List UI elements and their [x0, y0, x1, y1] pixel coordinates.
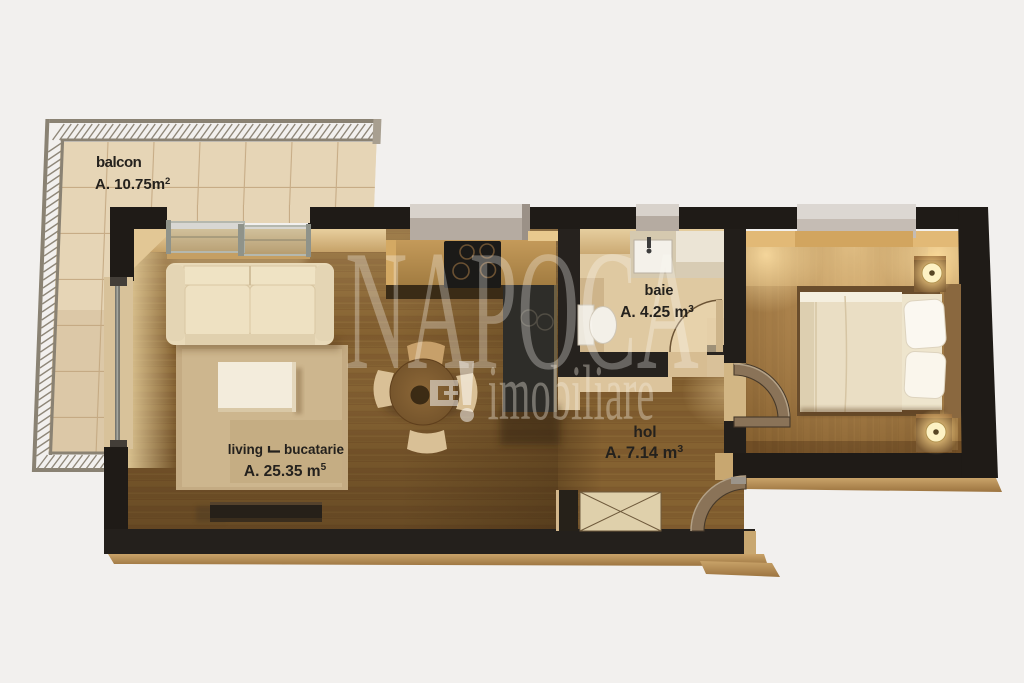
svg-text:living: living: [228, 442, 263, 457]
svg-text:hol: hol: [633, 424, 656, 441]
svg-text:A. 7.14 m3: A. 7.14 m3: [605, 443, 683, 462]
svg-text:bucatarie: bucatarie: [284, 442, 345, 457]
svg-text:A. 4.25 m3: A. 4.25 m3: [620, 304, 694, 321]
svg-text:A. 10.75m2: A. 10.75m2: [95, 176, 170, 193]
svg-text:imobiliare: imobiliare: [488, 351, 655, 436]
svg-text:A. 25.35 m5: A. 25.35 m5: [244, 462, 327, 480]
svg-text:baie: baie: [644, 283, 673, 299]
svg-text:balcon: balcon: [96, 154, 142, 171]
